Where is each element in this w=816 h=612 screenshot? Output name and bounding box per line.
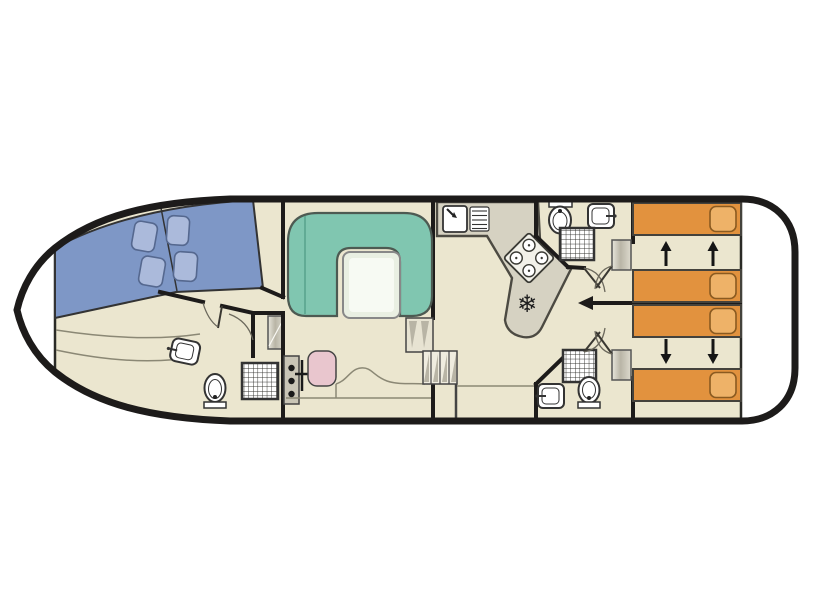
bow-bed-pillow — [138, 255, 167, 288]
helm-seat — [308, 351, 336, 386]
stern-deck — [741, 202, 792, 418]
salon — [288, 213, 432, 318]
shower-grid-icon — [560, 228, 594, 260]
bow-bed-pillow — [173, 251, 198, 282]
wardrobe — [612, 240, 631, 270]
galley-sink-icon — [443, 206, 489, 232]
wardrobe — [612, 350, 631, 380]
boat-floor-plan: ❄ — [0, 0, 816, 612]
aft-bed-pillow — [710, 207, 736, 232]
floor-plan-canvas: ❄ — [0, 0, 816, 612]
sink-icon — [535, 384, 564, 408]
gauge-dot — [288, 391, 294, 397]
salon-table-top — [349, 258, 394, 312]
aft-beds — [633, 203, 741, 401]
gauge-dot — [288, 365, 294, 371]
sink-icon — [588, 204, 617, 228]
shower-grid-icon — [242, 363, 278, 399]
aft-bed-pillow — [710, 373, 736, 398]
bow-bed-pillow — [131, 220, 159, 253]
gauge-dot — [288, 378, 294, 384]
bow-bed-pillow — [166, 215, 190, 245]
toilet-icon — [578, 377, 600, 408]
fridge-snowflake-icon: ❄ — [517, 290, 537, 318]
aft-bed-pillow — [710, 274, 736, 299]
aft-bed-pillow — [710, 309, 736, 334]
toilet-icon — [204, 374, 226, 408]
